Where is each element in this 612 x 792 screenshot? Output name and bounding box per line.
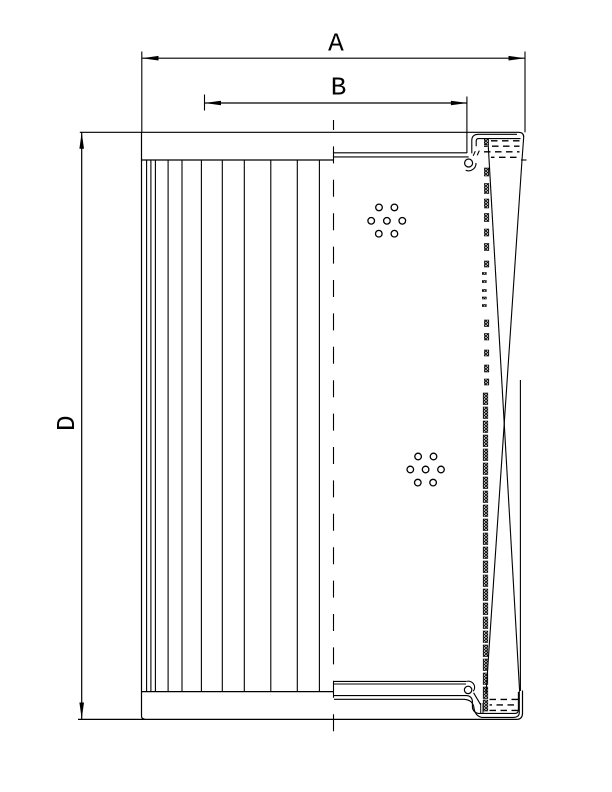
svg-text:A: A (328, 28, 344, 58)
svg-text:B: B (331, 73, 347, 103)
svg-text:D: D (52, 415, 82, 431)
